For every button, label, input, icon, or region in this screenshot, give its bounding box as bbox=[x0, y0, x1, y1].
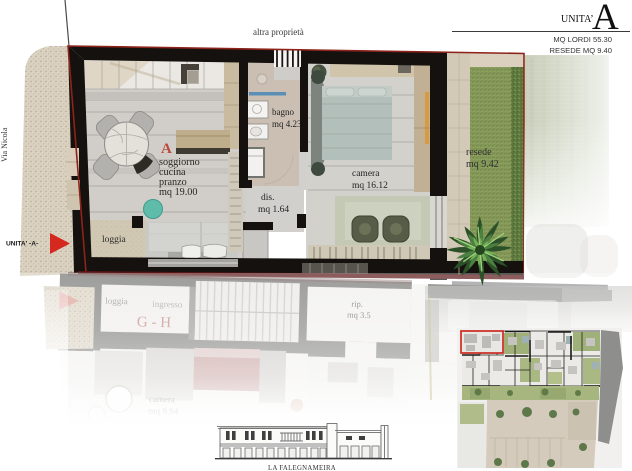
svg-text:RESEDE MQ 9.40: RESEDE MQ 9.40 bbox=[550, 46, 612, 55]
svg-text:LA FALEGNAMEIRA: LA FALEGNAMEIRA bbox=[268, 465, 336, 471]
svg-text:MQ LORDI 55.30: MQ LORDI 55.30 bbox=[553, 35, 612, 44]
svg-text:resede: resede bbox=[466, 147, 492, 158]
svg-text:mq 1.64: mq 1.64 bbox=[258, 205, 289, 215]
svg-text:dis.: dis. bbox=[261, 193, 274, 203]
svg-text:mq 19.00: mq 19.00 bbox=[159, 187, 198, 198]
svg-text:A: A bbox=[161, 141, 172, 157]
svg-text:camera: camera bbox=[352, 169, 380, 179]
svg-text:loggia: loggia bbox=[102, 235, 127, 245]
svg-text:mq 4.23: mq 4.23 bbox=[272, 119, 302, 129]
svg-text:bagno: bagno bbox=[272, 107, 294, 117]
svg-text:A: A bbox=[592, 0, 619, 38]
svg-text:altra proprietà: altra proprietà bbox=[253, 27, 304, 37]
svg-text:mq 9.42: mq 9.42 bbox=[466, 159, 499, 170]
svg-text:UNITA' -A-: UNITA' -A- bbox=[6, 241, 38, 248]
svg-text:Via Nicola: Via Nicola bbox=[0, 127, 9, 162]
svg-text:mq 16.12: mq 16.12 bbox=[352, 181, 388, 191]
svg-text:UNITA’: UNITA’ bbox=[561, 14, 594, 25]
